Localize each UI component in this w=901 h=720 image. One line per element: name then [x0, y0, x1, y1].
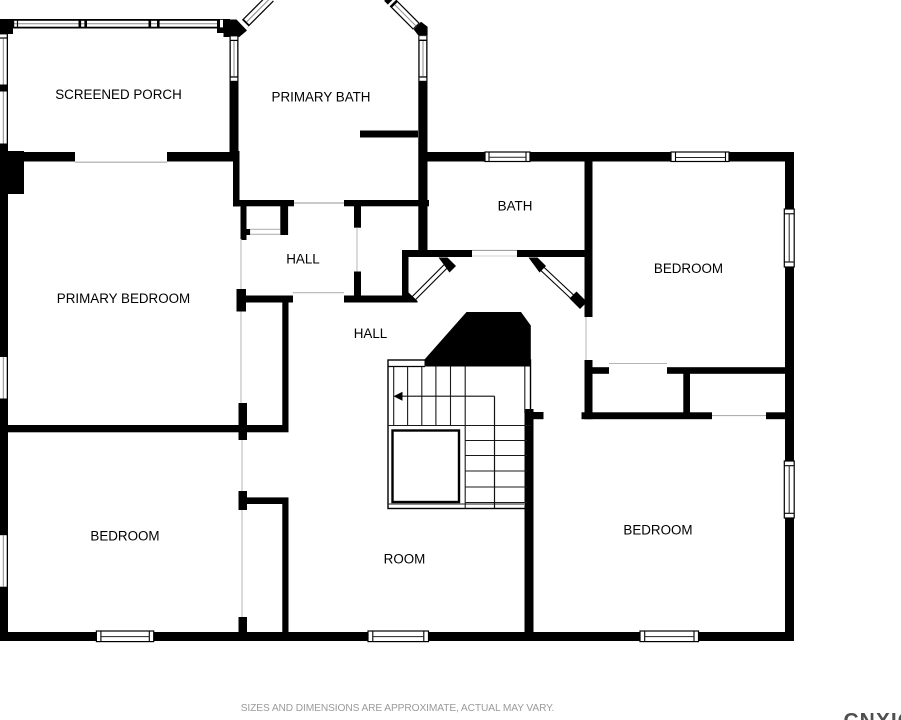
svg-text:BEDROOM: BEDROOM [654, 261, 723, 276]
svg-text:PRIMARY BATH: PRIMARY BATH [272, 90, 371, 105]
svg-text:HALL: HALL [354, 326, 388, 341]
svg-text:BEDROOM: BEDROOM [623, 523, 692, 538]
svg-text:SIZES AND DIMENSIONS ARE APPRO: SIZES AND DIMENSIONS ARE APPROXIMATE, AC… [241, 703, 555, 714]
svg-text:SCREENED PORCH: SCREENED PORCH [55, 87, 182, 102]
svg-text:ROOM: ROOM [384, 552, 426, 567]
svg-text:BEDROOM: BEDROOM [90, 529, 159, 544]
svg-text:BATH: BATH [498, 199, 533, 214]
svg-text:CNXICA: CNXICA [844, 710, 901, 720]
svg-text:PRIMARY BEDROOM: PRIMARY BEDROOM [57, 291, 190, 306]
svg-text:HALL: HALL [286, 252, 320, 267]
